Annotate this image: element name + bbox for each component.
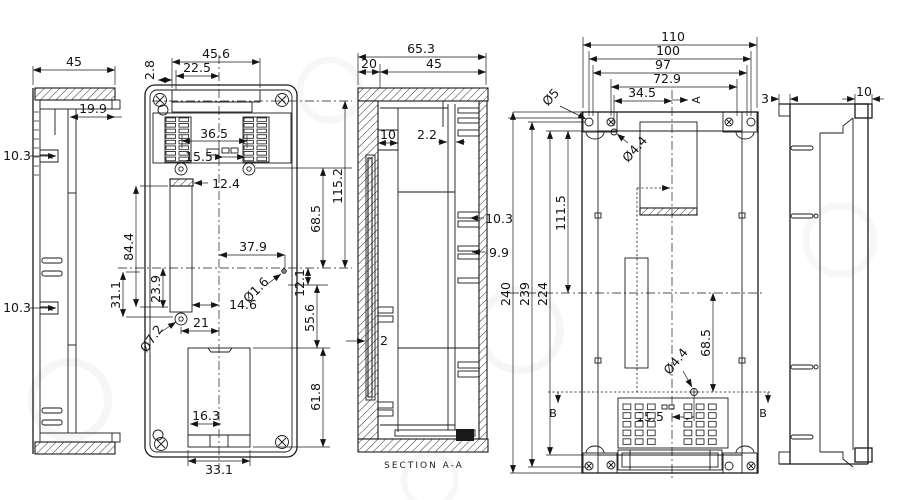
dim-right-step-width: 10 — [856, 84, 872, 99]
dim-back-inner-span: 72.9 — [653, 71, 681, 86]
dim-back-lower-offset: 68.5 — [698, 329, 713, 357]
dim-front-dip-span: 36.5 — [200, 126, 228, 141]
dim-front-slot-edge-gap: 2.8 — [142, 60, 157, 80]
dim-back-inner-height: 224 — [535, 282, 550, 306]
dim-front-slot-lower: 31.1 — [108, 281, 123, 309]
dim-front-slot-mid: 23.9 — [148, 275, 163, 303]
dim-section-lip-depth: 10 — [380, 127, 396, 142]
dim-side-overall-width: 45 — [66, 54, 82, 69]
dim-section-overall-width: 65.3 — [407, 41, 435, 56]
view-right-side: 3 10 — [761, 84, 884, 467]
dim-side-upper-rib: 10.3 — [3, 148, 31, 163]
dim-section-panel-gap: 2.2 — [417, 127, 437, 142]
view-front: 45.6 22.5 2.8 36.5 15.5 12.4 — [108, 46, 352, 477]
dim-front-slot-half: 22.5 — [183, 60, 211, 75]
view-back: 110 100 97 72.9 34.5 A — [498, 29, 770, 478]
dim-front-slot-width: 45.6 — [202, 46, 230, 61]
dim-front-tab-width: 12.4 — [212, 176, 240, 191]
screw-bosses — [175, 163, 255, 175]
dim-back-bottom-hole-dia: Ø4.4 — [660, 345, 691, 377]
dim-front-upper-height: 68.5 — [308, 205, 323, 233]
vent-slots — [791, 146, 818, 439]
section-label: SECTION A-A — [384, 461, 464, 471]
dim-back-hole-span: 97 — [655, 57, 671, 72]
dim-front-battery-tab: 16.3 — [192, 408, 220, 423]
dim-back-aux-hole-dia: Ø4.4 — [619, 133, 650, 165]
dim-back-overall-height: 240 — [498, 282, 513, 306]
section-marker-a: A — [690, 96, 703, 104]
dim-section-wall-width: 20 — [361, 56, 377, 71]
dim-section-panel-thickness: 2 — [380, 333, 388, 348]
dim-back-mount-height: 239 — [517, 282, 532, 306]
drawing-canvas: 45 19.9 10.3 10.3 — [0, 0, 900, 500]
dim-front-center-gap: 12.1 — [292, 269, 307, 297]
dim-back-mount-width: 100 — [656, 43, 680, 58]
section-marker-b-right: B — [759, 407, 767, 420]
view-section: 65.3 20 45 — [346, 41, 513, 471]
dim-back-ear-hole-dia: Ø5 — [539, 85, 562, 108]
dim-side-flange: 19.9 — [79, 101, 107, 116]
mounting-ears-top — [583, 112, 757, 139]
dim-back-upper-height: 111.5 — [553, 195, 568, 231]
dim-front-lower-height: 55.6 — [302, 304, 317, 332]
technical-drawing-page: 45 19.9 10.3 10.3 — [0, 0, 900, 500]
dim-right-lip-width: 3 — [761, 91, 769, 106]
dim-side-lower-rib: 10.3 — [3, 300, 31, 315]
dim-section-rib-lower: 9.9 — [489, 245, 509, 260]
wall-serrations — [34, 112, 39, 175]
dim-section-inner-width: 45 — [426, 56, 442, 71]
dim-front-screw-dia: Ø7.2 — [137, 322, 166, 355]
dim-front-total-height: 115.2 — [330, 168, 345, 204]
dim-front-dip-offset: 15.5 — [185, 149, 213, 164]
section-marker-b-left: B — [549, 407, 557, 420]
dim-front-battery-width: 33.1 — [205, 462, 233, 477]
dim-front-screw-offset: 21 — [193, 315, 209, 330]
dim-front-slot-height: 84.4 — [121, 233, 136, 261]
dim-section-rib-upper: 10.3 — [485, 211, 513, 226]
dim-back-hole-offset-x: 34.5 — [628, 85, 656, 100]
dim-front-hole-offset-x: 37.9 — [239, 239, 267, 254]
dim-front-hole-offset-y: 14.6 — [229, 297, 257, 312]
section-ribs — [458, 108, 479, 377]
dim-front-battery-height: 61.8 — [308, 383, 323, 411]
dim-back-overall-width: 110 — [661, 29, 685, 44]
